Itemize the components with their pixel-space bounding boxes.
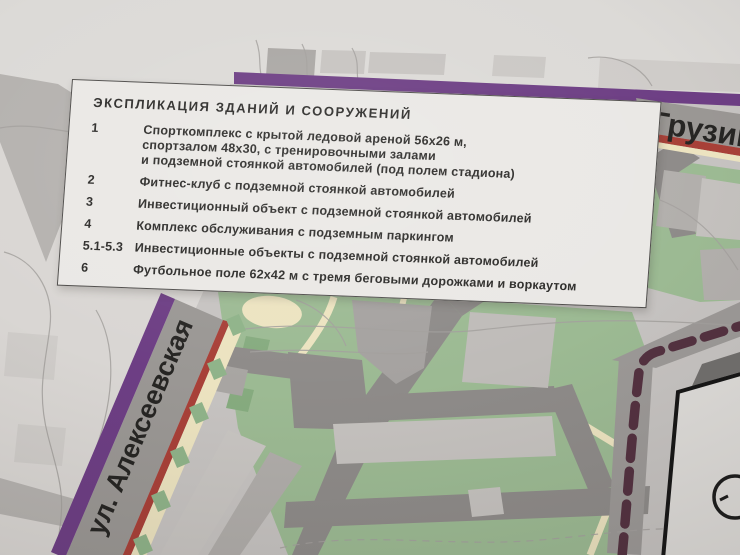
building [320, 50, 366, 74]
building [266, 48, 316, 78]
ghost-building [14, 424, 66, 466]
building [492, 55, 546, 78]
legend-item-number: 2 [87, 173, 140, 190]
legend-item-number: 5.1-5.3 [82, 239, 135, 256]
ghost-building [4, 332, 58, 380]
building [700, 248, 740, 300]
building [333, 416, 556, 464]
legend-item-number: 4 [84, 217, 137, 234]
photo-of-site-plan: ул. Алексеевская Грузин ЭКСПЛИКАЦИЯ ЗДАН… [0, 0, 740, 555]
legend-card: ЭКСПЛИКАЦИЯ ЗДАНИЙ И СООРУЖЕНИЙ 1 Спортк… [57, 79, 662, 308]
legend-item-number: 1 [89, 121, 144, 168]
building [368, 52, 446, 75]
road-junction [288, 352, 370, 430]
legend-item-number: 6 [81, 261, 134, 278]
building [468, 487, 504, 517]
building [598, 58, 740, 92]
legend-item-number: 3 [85, 195, 138, 212]
building [696, 178, 740, 240]
